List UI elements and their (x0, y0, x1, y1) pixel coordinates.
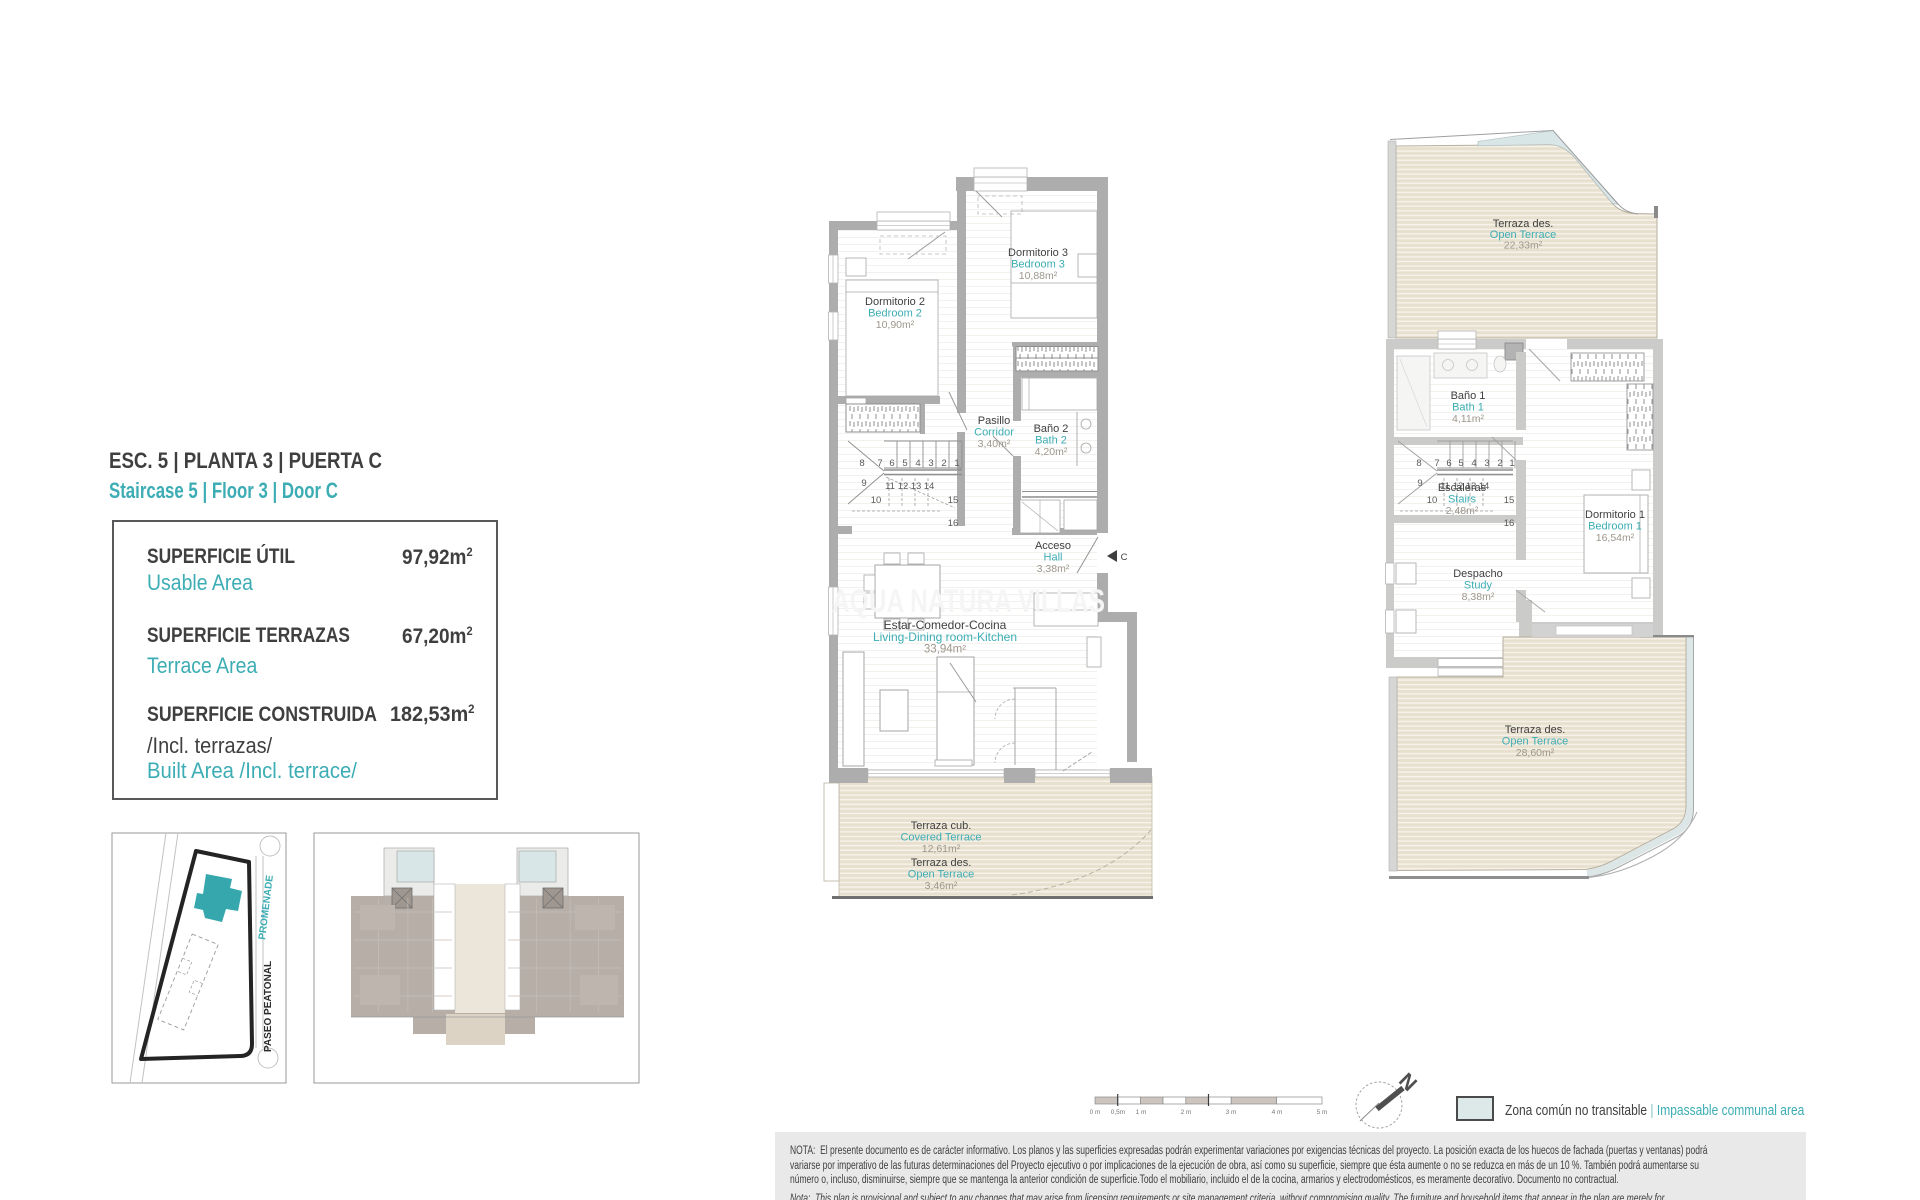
svg-text:Baño 2: Baño 2 (1034, 423, 1069, 435)
svg-text:4,11m²: 4,11m² (1452, 413, 1484, 425)
svg-text:4 m: 4 m (1272, 1109, 1283, 1116)
svg-text:2: 2 (941, 458, 946, 469)
svg-text:16,54m²: 16,54m² (1596, 532, 1635, 544)
svg-text:4: 4 (915, 458, 920, 469)
svg-text:22,33m²: 22,33m² (1504, 240, 1543, 252)
svg-text:PASEO PEATONAL: PASEO PEATONAL (263, 961, 274, 1052)
svg-text:9: 9 (1417, 478, 1422, 489)
svg-text:7: 7 (1434, 458, 1439, 469)
svg-text:Bedroom 2: Bedroom 2 (868, 307, 922, 319)
svg-text:2: 2 (1497, 458, 1502, 469)
svg-text:8,38m²: 8,38m² (1462, 591, 1495, 603)
svg-text:10: 10 (871, 495, 882, 506)
svg-text:0 m: 0 m (1090, 1109, 1101, 1116)
svg-text:10,88m²: 10,88m² (1019, 270, 1058, 282)
svg-text:Dormitorio 3: Dormitorio 3 (1008, 247, 1068, 259)
svg-text:Bedroom 1: Bedroom 1 (1588, 520, 1642, 532)
svg-text:Stairs: Stairs (1448, 493, 1477, 505)
svg-text:2,48m²: 2,48m² (1446, 505, 1479, 517)
svg-text:4: 4 (1471, 458, 1476, 469)
svg-text:6: 6 (1446, 458, 1451, 469)
svg-text:Dormitorio 1: Dormitorio 1 (1585, 509, 1645, 521)
svg-text:14: 14 (924, 481, 935, 492)
svg-text:5: 5 (902, 458, 907, 469)
svg-text:Living-Dining room-Kitchen: Living-Dining room-Kitchen (873, 630, 1017, 644)
svg-text:0,5m: 0,5m (1111, 1109, 1125, 1116)
svg-text:13: 13 (911, 481, 922, 492)
svg-text:Bath 1: Bath 1 (1452, 401, 1484, 413)
svg-text:C: C (1121, 552, 1128, 563)
svg-text:16: 16 (1504, 518, 1515, 529)
svg-text:3,46m²: 3,46m² (925, 880, 958, 892)
svg-text:Dormitorio 2: Dormitorio 2 (865, 296, 925, 308)
svg-text:2 m: 2 m (1181, 1109, 1192, 1116)
svg-text:1: 1 (1509, 458, 1514, 469)
svg-text:3: 3 (1484, 458, 1489, 469)
svg-text:10: 10 (1427, 495, 1438, 506)
svg-text:1 m: 1 m (1136, 1109, 1147, 1116)
svg-text:7: 7 (877, 458, 882, 469)
svg-text:Baño 1: Baño 1 (1451, 390, 1486, 402)
svg-text:8: 8 (859, 458, 864, 469)
svg-text:3: 3 (928, 458, 933, 469)
svg-text:Terraza des.: Terraza des. (911, 857, 972, 869)
svg-text:6: 6 (889, 458, 894, 469)
svg-text:10,90m²: 10,90m² (876, 319, 915, 331)
svg-text:Study: Study (1464, 579, 1493, 591)
svg-text:Bath 2: Bath 2 (1035, 434, 1067, 446)
svg-text:Hall: Hall (1044, 551, 1063, 563)
svg-text:3,38m²: 3,38m² (1037, 563, 1070, 575)
svg-text:Escaleras: Escaleras (1438, 482, 1487, 494)
svg-text:1: 1 (954, 458, 959, 469)
svg-text:15: 15 (1504, 495, 1515, 506)
svg-text:Terraza cub.: Terraza cub. (911, 820, 972, 832)
svg-text:16: 16 (948, 518, 959, 529)
svg-text:Acceso: Acceso (1035, 540, 1071, 552)
svg-text:15: 15 (948, 495, 959, 506)
svg-text:Terraza des.: Terraza des. (1505, 724, 1566, 736)
svg-text:Open Terrace: Open Terrace (1502, 735, 1568, 747)
svg-text:Despacho: Despacho (1453, 568, 1503, 580)
svg-text:Covered Terrace: Covered Terrace (900, 831, 981, 843)
svg-text:3,40m²: 3,40m² (978, 438, 1011, 450)
svg-text:5 m: 5 m (1317, 1109, 1328, 1116)
svg-text:Bedroom 3: Bedroom 3 (1011, 258, 1065, 270)
svg-text:Corridor: Corridor (974, 426, 1014, 438)
svg-text:AQUA NATURA VILLAS: AQUA NATURA VILLAS (832, 583, 1105, 619)
svg-text:Open Terrace: Open Terrace (908, 868, 974, 880)
svg-text:9: 9 (861, 478, 866, 489)
svg-text:4,20m²: 4,20m² (1035, 446, 1068, 458)
svg-text:12,61m²: 12,61m² (922, 843, 961, 855)
svg-text:5: 5 (1458, 458, 1463, 469)
svg-text:12: 12 (898, 481, 909, 492)
svg-text:3 m: 3 m (1226, 1109, 1237, 1116)
svg-text:33,94m²: 33,94m² (924, 644, 966, 656)
svg-text:Pasillo: Pasillo (978, 415, 1010, 427)
svg-text:11: 11 (885, 481, 895, 492)
svg-text:8: 8 (1416, 458, 1421, 469)
svg-text:28,60m²: 28,60m² (1516, 747, 1555, 759)
